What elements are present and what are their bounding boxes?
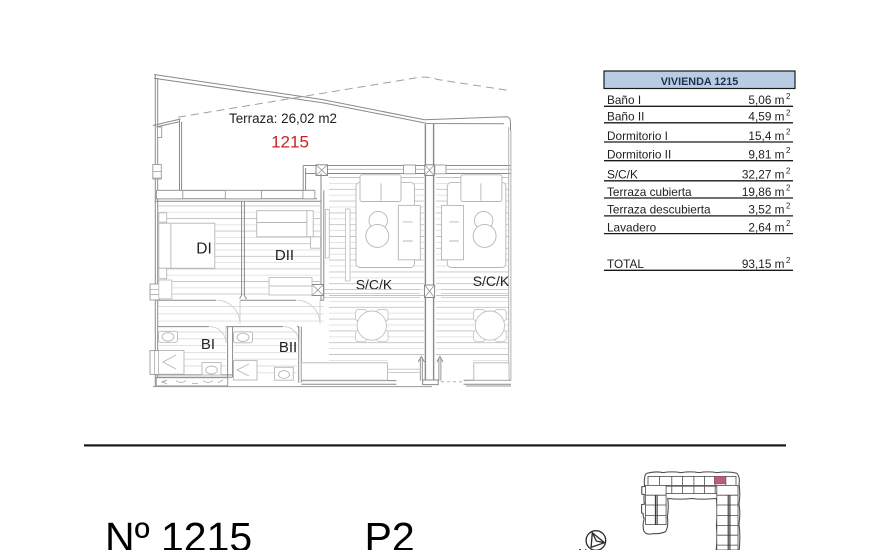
svg-text:2: 2 (786, 92, 791, 101)
svg-text:1215: 1215 (271, 133, 309, 152)
svg-text:15,4 m: 15,4 m (748, 129, 784, 143)
svg-text:19,86 m: 19,86 m (742, 185, 785, 199)
svg-text:DI: DI (196, 241, 212, 258)
svg-text:S/C/K: S/C/K (607, 168, 638, 182)
svg-text:3,52 m: 3,52 m (748, 203, 784, 217)
svg-text:93,15 m: 93,15 m (742, 257, 785, 271)
svg-text:Dormitorio I: Dormitorio I (607, 129, 668, 143)
svg-text:2,64 m: 2,64 m (748, 220, 784, 234)
svg-text:4,59 m: 4,59 m (748, 110, 784, 124)
svg-text:32,27 m: 32,27 m (742, 168, 785, 182)
svg-text:Nº 1215: Nº 1215 (105, 514, 252, 550)
svg-text:Terraza: 26,02 m2: Terraza: 26,02 m2 (229, 111, 337, 126)
svg-text:Lavadero: Lavadero (607, 220, 657, 234)
svg-text:2: 2 (786, 108, 791, 117)
svg-text:BII: BII (279, 339, 297, 356)
svg-text:Terraza descubierta: Terraza descubierta (607, 203, 711, 217)
svg-text:2: 2 (786, 128, 791, 137)
svg-text:5,06 m: 5,06 m (748, 93, 784, 107)
svg-text:9,81 m: 9,81 m (748, 148, 784, 162)
svg-text:2: 2 (786, 219, 791, 228)
svg-text:P2: P2 (365, 514, 415, 550)
svg-text:2: 2 (786, 184, 791, 193)
svg-text:2: 2 (786, 256, 791, 265)
svg-text:DII: DII (275, 247, 294, 264)
svg-text:Baño II: Baño II (607, 110, 644, 124)
svg-text:2: 2 (786, 201, 791, 210)
svg-text:Dormitorio II: Dormitorio II (607, 148, 671, 162)
svg-text:Terraza cubierta: Terraza cubierta (607, 185, 692, 199)
svg-text:N: N (578, 546, 587, 550)
svg-text:S/C/K: S/C/K (356, 277, 393, 293)
svg-text:2: 2 (786, 146, 791, 155)
svg-text:BI: BI (201, 336, 215, 353)
svg-text:2: 2 (786, 166, 791, 175)
svg-text:S/C/K: S/C/K (473, 273, 510, 289)
svg-text:TOTAL: TOTAL (607, 257, 644, 271)
svg-text:Baño I: Baño I (607, 93, 641, 107)
svg-text:VIVIENDA 1215: VIVIENDA 1215 (661, 76, 739, 88)
